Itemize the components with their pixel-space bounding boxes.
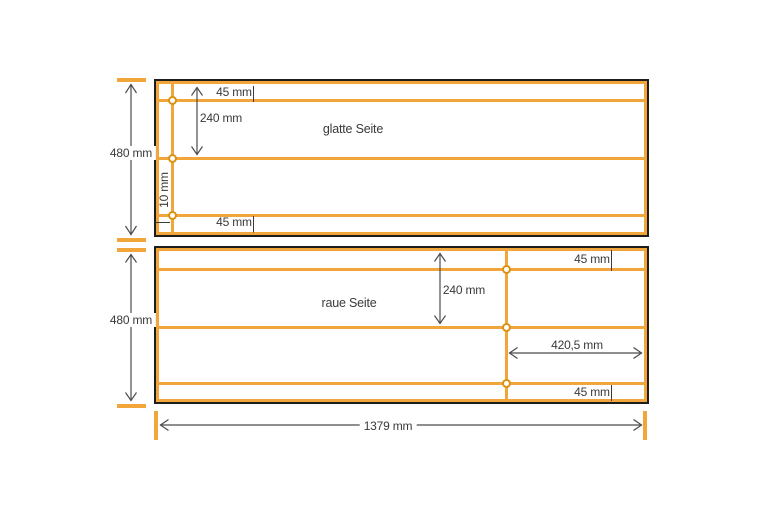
dim-label-10mm: 10 mm bbox=[157, 172, 171, 208]
dim-label-45mm-bottom-panel-lower: 45 mm bbox=[574, 385, 610, 399]
dim-label-1379mm: 1379 mm bbox=[360, 419, 417, 433]
dim-label-240mm-bottom-panel: 240 mm bbox=[443, 283, 485, 297]
dim-label-480mm-bottom-panel: 480 mm bbox=[106, 313, 156, 327]
label-rough-side: raue Seite bbox=[322, 296, 377, 310]
dim-label-480mm-top-panel: 480 mm bbox=[106, 146, 156, 160]
label-smooth-side: glatte Seite bbox=[323, 122, 383, 136]
dim-label-45mm-top-panel-upper: 45 mm bbox=[216, 85, 252, 99]
dim-label-240mm-top-panel: 240 mm bbox=[200, 111, 242, 125]
dimension-lines-layer bbox=[0, 0, 768, 512]
panel-cutting-diagram: 45 mm 240 mm glatte Seite 480 mm 10 mm 4… bbox=[0, 0, 768, 512]
dim-arrow-480-bottom-panel bbox=[126, 254, 137, 401]
dim-label-45mm-bottom-panel-upper: 45 mm bbox=[574, 252, 610, 266]
dim-label-420-5mm: 420,5 mm bbox=[551, 338, 603, 352]
dim-label-45mm-top-panel-lower: 45 mm bbox=[216, 215, 252, 229]
